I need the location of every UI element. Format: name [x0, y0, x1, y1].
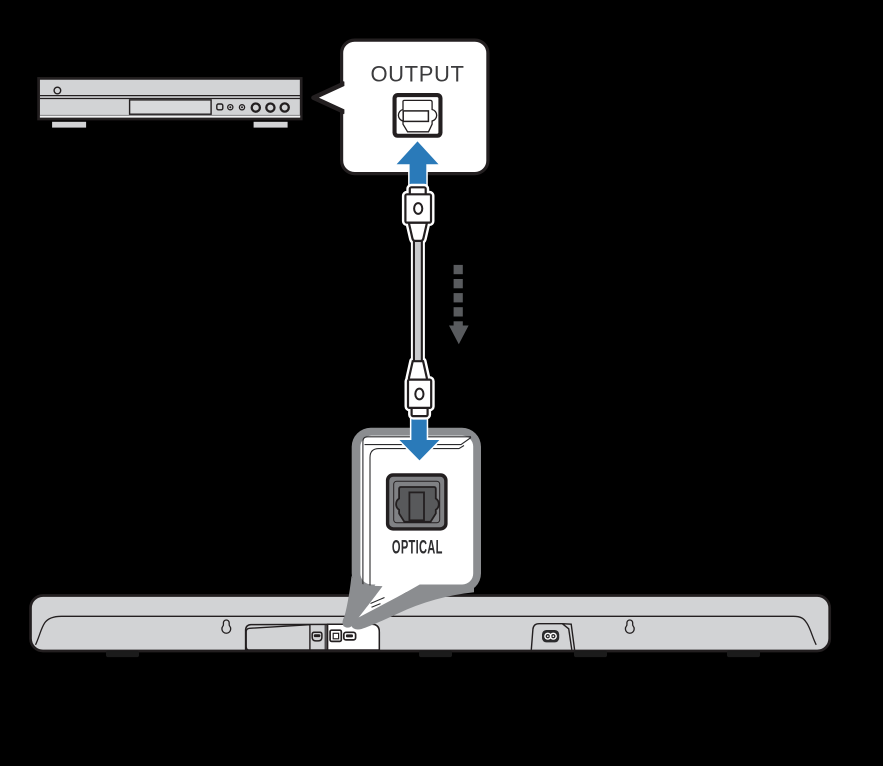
svg-text:OPTICAL: OPTICAL [392, 538, 443, 559]
svg-text:OUTPUT: OUTPUT [370, 62, 464, 87]
